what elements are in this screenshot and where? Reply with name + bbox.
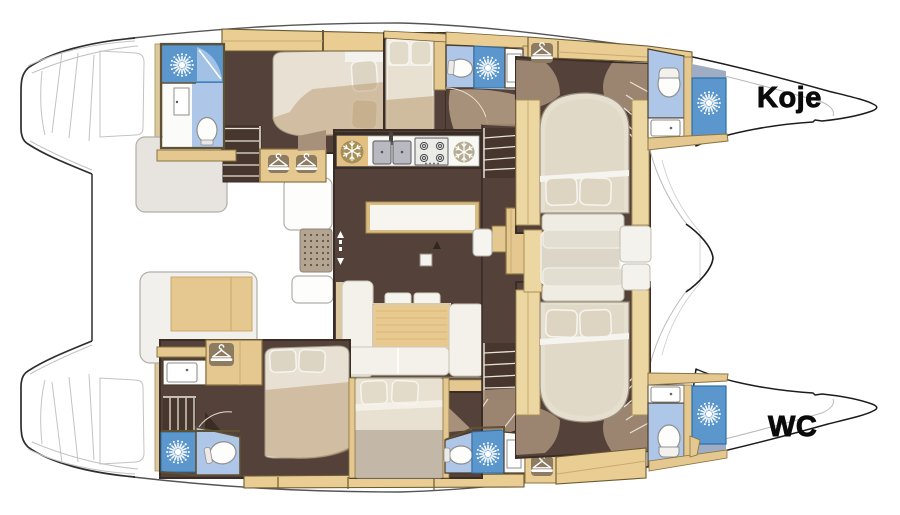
svg-text:WC: WC: [768, 411, 817, 443]
svg-text:Koje: Koje: [757, 82, 822, 114]
